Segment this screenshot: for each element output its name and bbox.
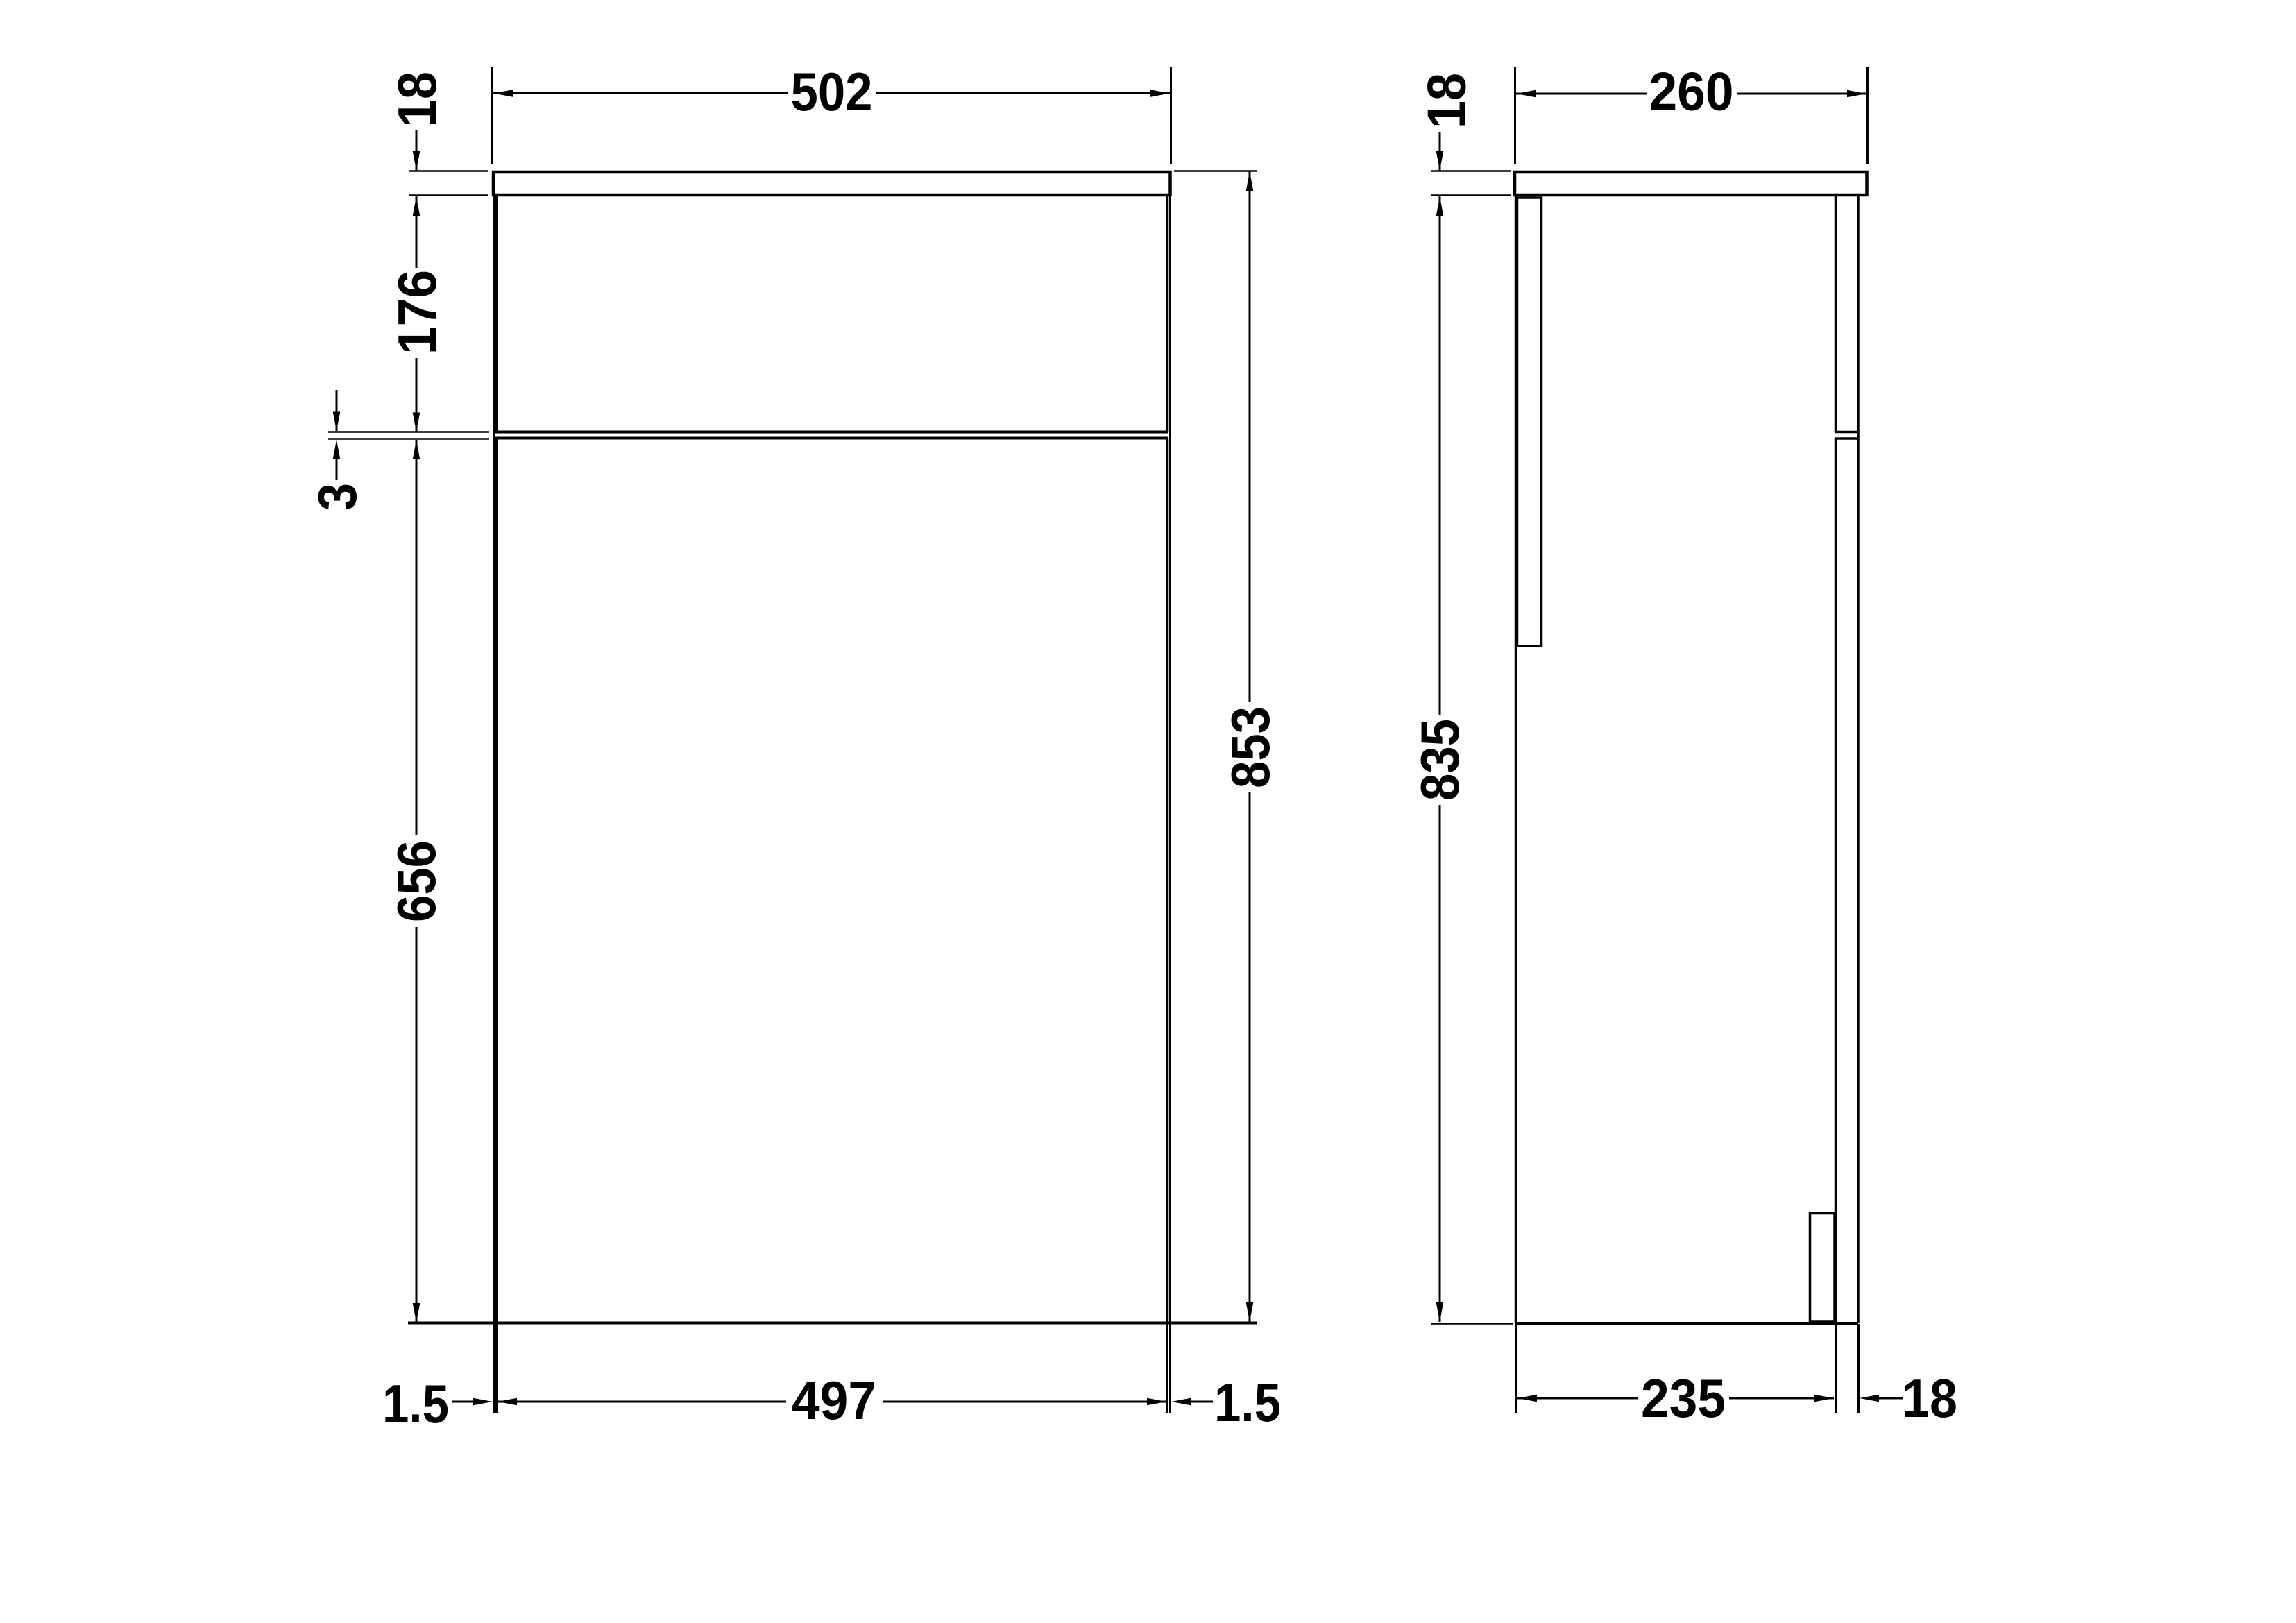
svg-text:3: 3 bbox=[307, 483, 368, 511]
svg-text:176: 176 bbox=[386, 270, 448, 355]
svg-text:656: 656 bbox=[386, 840, 447, 922]
svg-text:502: 502 bbox=[791, 61, 873, 122]
svg-text:235: 235 bbox=[1641, 1368, 1726, 1429]
svg-text:260: 260 bbox=[1649, 61, 1734, 122]
svg-text:18: 18 bbox=[1416, 73, 1477, 128]
svg-text:1.5: 1.5 bbox=[1214, 1372, 1281, 1433]
svg-text:18: 18 bbox=[1902, 1368, 1957, 1429]
svg-text:853: 853 bbox=[1220, 706, 1281, 788]
svg-text:1.5: 1.5 bbox=[382, 1373, 449, 1434]
svg-text:497: 497 bbox=[792, 1370, 876, 1431]
svg-text:835: 835 bbox=[1409, 719, 1470, 801]
svg-text:18: 18 bbox=[386, 71, 448, 127]
